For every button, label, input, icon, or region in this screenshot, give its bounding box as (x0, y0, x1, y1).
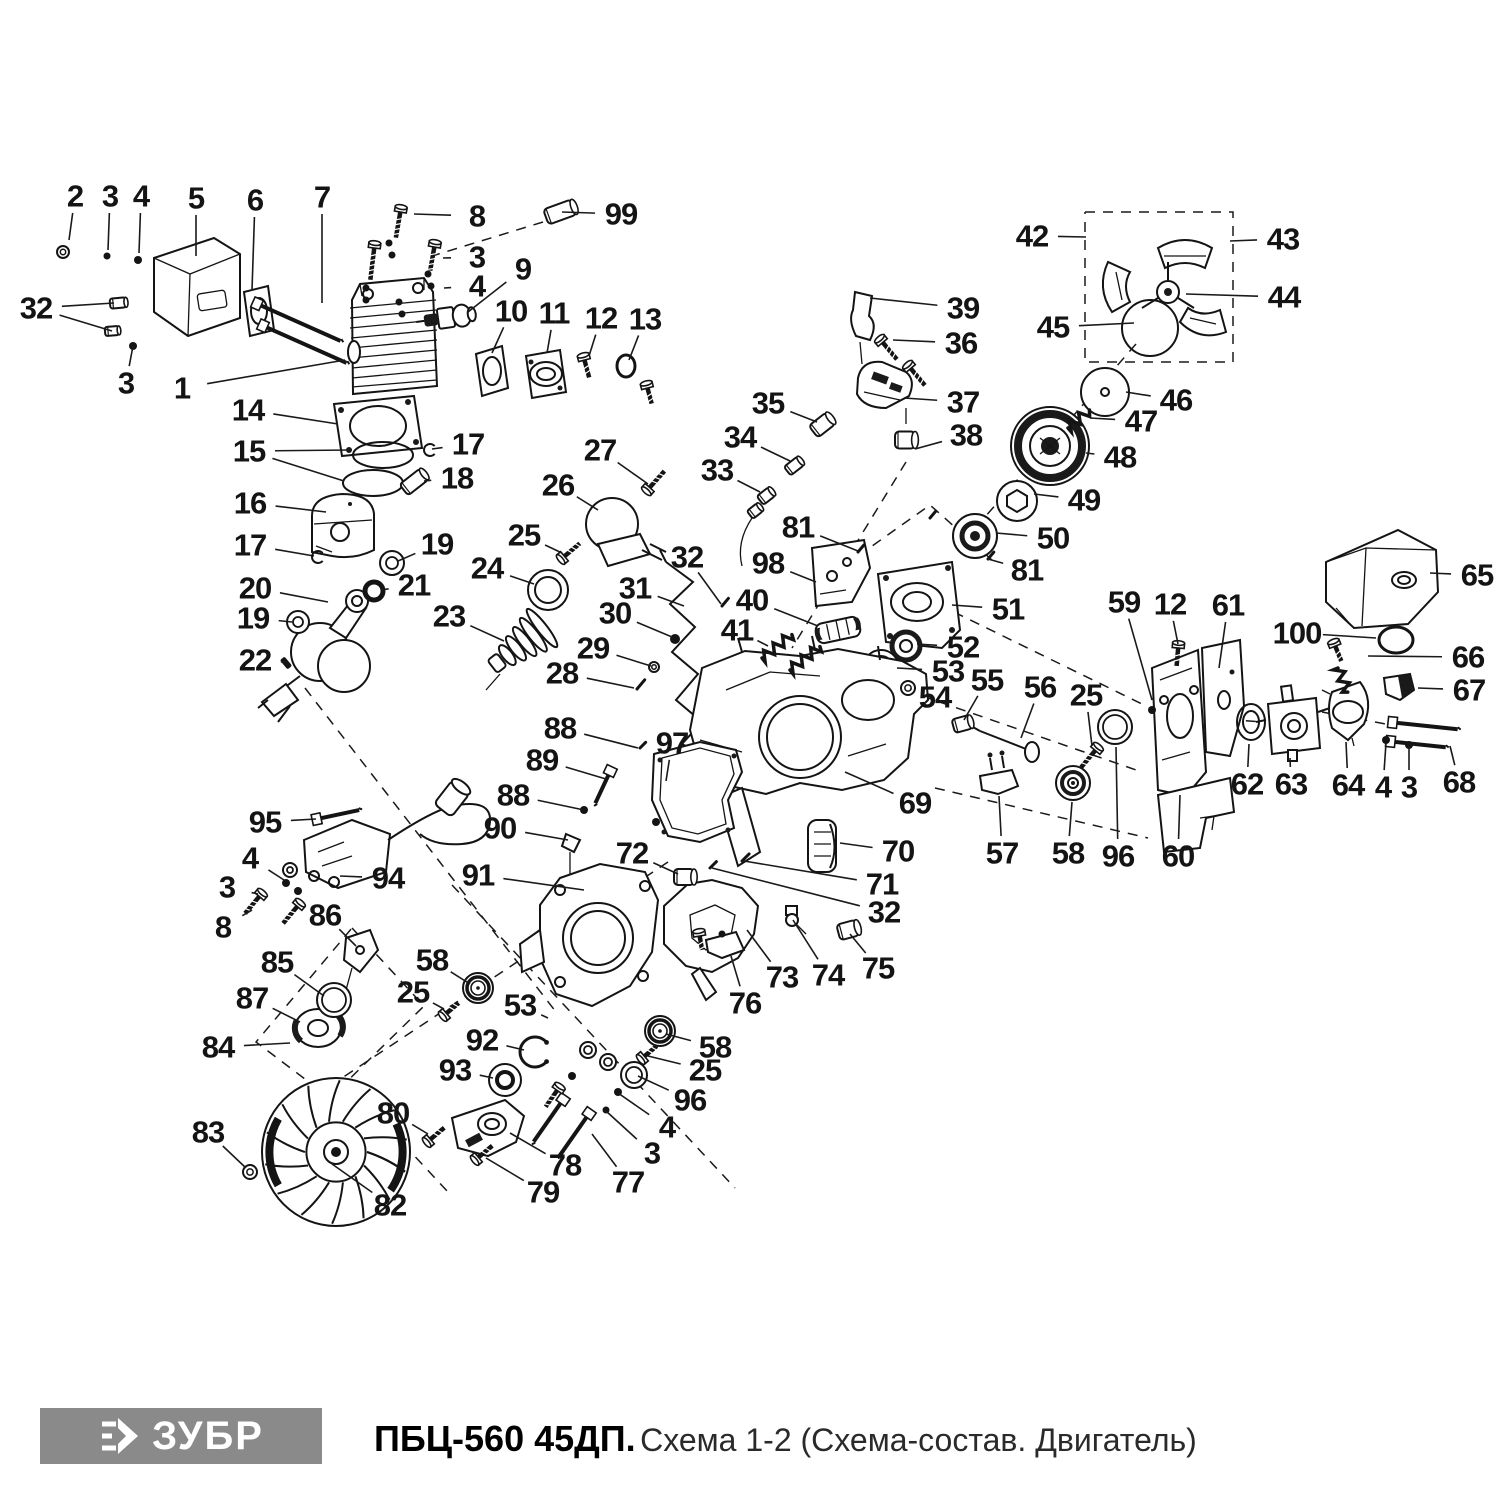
leader-line (870, 298, 937, 305)
parts-diagram-page: 2345678993941011121332311415171816171921… (0, 0, 1500, 1500)
hardware-washer-glyph (317, 983, 351, 1017)
leader-line (1086, 453, 1094, 454)
leader-line (592, 1134, 617, 1167)
leader-line (648, 1056, 681, 1064)
leader-line (1079, 323, 1134, 326)
hardware-screw-glyph (390, 204, 408, 239)
leader-line (618, 462, 648, 484)
leader-line (1069, 802, 1072, 836)
hardware-dot-glyph (294, 887, 302, 895)
part-number-54: 54 (919, 680, 953, 715)
part-number-22: 22 (239, 643, 271, 678)
part-crankshaft (258, 590, 370, 722)
leader-line (1368, 656, 1442, 657)
part-number-5: 5 (188, 181, 205, 216)
hardware-washer-glyph (621, 1062, 647, 1088)
leader-line (547, 330, 551, 353)
leader-line (587, 678, 634, 688)
part-number-28: 28 (546, 656, 579, 691)
part-number-95: 95 (249, 805, 282, 840)
part-number-33: 33 (701, 453, 734, 488)
hardware-dot-glyph (670, 634, 680, 644)
part-head-gasket (334, 396, 422, 456)
part-number-86: 86 (309, 898, 342, 933)
part-number-44: 44 (1268, 280, 1302, 315)
hardware-dot-glyph (425, 271, 432, 278)
hardware-dot-glyph (428, 283, 435, 290)
schema-subtitle: Схема 1-2 (Схема-состав. Двигатель) (640, 1422, 1197, 1458)
part-number-65: 65 (1461, 558, 1494, 593)
part-number-14: 14 (232, 393, 266, 428)
part-exhaust-gasket (476, 346, 508, 396)
hardware-pin-glyph (710, 862, 716, 868)
part-number-11: 11 (539, 296, 571, 331)
schema-title: ПБЦ-560 45ДП. Схема 1-2 (Схема-состав. Д… (374, 1418, 1197, 1460)
part-number-51: 51 (992, 592, 1025, 627)
hardware-screw-glyph (873, 333, 901, 363)
part-number-3: 3 (1401, 770, 1418, 805)
hardware-screw-glyph (364, 240, 381, 280)
leader-line (1058, 236, 1086, 237)
hardware-cyl-glyph (757, 486, 777, 505)
part-fuel-hose (740, 518, 752, 566)
model-name: ПБЦ-560 45ДП. (374, 1418, 636, 1459)
leader-line (747, 930, 771, 962)
part-number-27: 27 (584, 433, 616, 468)
leader-line (294, 975, 324, 996)
leader-line (62, 303, 114, 306)
leader-line (988, 559, 1003, 563)
part-number-37: 37 (947, 385, 979, 420)
brand-name: ЗУБР (152, 1416, 264, 1456)
hardware-screw-glyph (424, 239, 441, 272)
part-number-64: 64 (1332, 768, 1366, 803)
part-number-19: 19 (237, 601, 270, 636)
part-cylinder (348, 278, 437, 394)
leader-line (1346, 742, 1347, 768)
leader-line (893, 340, 935, 342)
hardware-pin-glyph (930, 511, 936, 518)
leader-line (744, 861, 857, 880)
hardware-screw-glyph (421, 1123, 448, 1148)
part-number-74: 74 (812, 958, 846, 993)
diagram-canvas: 2345678993941011121332311415171816171921… (0, 0, 1500, 1396)
part-number-35: 35 (752, 386, 785, 421)
part-number-19: 19 (421, 527, 454, 562)
part-number-49: 49 (1068, 483, 1101, 518)
hardware-oringD-glyph (365, 582, 383, 600)
part-number-1: 1 (174, 371, 191, 406)
hardware-screw-glyph (1327, 637, 1347, 663)
leader-line (637, 622, 672, 637)
part-number-81: 81 (1011, 553, 1044, 588)
hardware-cyl-glyph (895, 432, 918, 449)
part-number-39: 39 (947, 291, 980, 326)
leader-line (999, 796, 1001, 836)
part-number-59: 59 (1108, 585, 1141, 620)
part-seal-52 (892, 632, 920, 660)
leader-line (790, 572, 816, 582)
hardware-nut-glyph (649, 662, 659, 672)
part-number-8: 8 (469, 199, 486, 234)
hardware-dot-glyph (568, 1072, 576, 1080)
hardware-clipC-glyph (520, 1037, 549, 1067)
leader-line (1418, 688, 1443, 689)
part-number-97: 97 (656, 726, 688, 761)
hardware-dot-glyph (104, 253, 111, 260)
hardware-pin-glyph (640, 742, 646, 748)
leader-line (272, 458, 344, 481)
leader-line (698, 572, 721, 604)
part-number-58: 58 (699, 1030, 732, 1065)
part-number-3: 3 (118, 366, 135, 401)
hardware-screw-glyph (241, 887, 269, 917)
part-number-25: 25 (508, 518, 541, 553)
hardware-dot-glyph (1148, 706, 1156, 714)
part-number-76: 76 (729, 986, 762, 1021)
leader-line (1230, 240, 1257, 241)
hardware-nut-glyph (57, 246, 69, 258)
part-number-38: 38 (950, 418, 983, 453)
leader-line (562, 212, 595, 213)
hardware-dot-glyph (386, 240, 393, 247)
leader-line (584, 734, 638, 748)
part-number-55: 55 (971, 663, 1004, 698)
part-muffler (154, 238, 240, 336)
part-number-6: 6 (247, 183, 264, 218)
leader-line (790, 412, 817, 422)
hardware-dot-glyph (363, 285, 370, 292)
part-number-25: 25 (397, 975, 430, 1010)
part-number-58: 58 (416, 943, 449, 978)
part-number-32: 32 (671, 540, 703, 575)
part-number-4: 4 (1375, 770, 1393, 805)
leader-line (1090, 418, 1115, 419)
part-number-82: 82 (374, 1188, 406, 1223)
part-av-buffer-70 (808, 820, 836, 872)
part-number-21: 21 (398, 568, 431, 603)
hardware-pin-glyph (637, 680, 645, 689)
part-number-90: 90 (484, 811, 516, 846)
part-piston (312, 494, 374, 557)
part-number-91: 91 (462, 858, 495, 893)
part-switch-74 (786, 906, 806, 934)
part-number-70: 70 (882, 834, 914, 869)
hardware-oring-glyph (1379, 627, 1413, 653)
hardware-bolt-glyph (1385, 735, 1449, 753)
leader-line (737, 480, 760, 492)
part-clutch-drum (1011, 407, 1089, 485)
hardware-screw-glyph (577, 351, 595, 379)
part-oil-plunger-56 (971, 726, 1039, 762)
part-number-99: 99 (605, 197, 638, 232)
leader-line (915, 442, 942, 449)
leader-line (538, 800, 584, 810)
leader-line (207, 360, 345, 384)
part-number-43: 43 (1267, 222, 1300, 257)
part-number-53: 53 (504, 988, 537, 1023)
hardware-cyl-glyph (951, 714, 975, 733)
leader-line (273, 414, 338, 424)
hardware-screw-glyph (640, 379, 658, 405)
hardware-screw-glyph (437, 998, 463, 1022)
leader-line (1384, 743, 1386, 770)
leader-line (275, 450, 352, 451)
leader-line (731, 956, 740, 986)
hardware-washer-glyph (1098, 710, 1132, 744)
part-number-88: 88 (544, 711, 577, 746)
hardware-washer-glyph (283, 863, 297, 877)
part-number-56: 56 (1024, 670, 1057, 705)
construction-line (935, 788, 1148, 838)
part-chain-catcher-57 (980, 751, 1018, 795)
leader-line (470, 626, 504, 641)
part-number-89: 89 (526, 743, 559, 778)
leader-line (541, 1015, 548, 1018)
part-oil-pump-top (857, 362, 912, 424)
leader-line (1430, 573, 1451, 574)
hardware-dot-glyph (652, 818, 660, 826)
leader-line (275, 549, 314, 556)
part-number-94: 94 (372, 861, 406, 896)
part-oil-seal-24 (528, 570, 568, 610)
hardware-screw-glyph (1077, 741, 1105, 771)
hardware-cyl-glyph (809, 410, 838, 437)
part-crank-boot-tip (486, 674, 500, 690)
part-number-46: 46 (1160, 383, 1193, 418)
hardware-key-glyph (280, 656, 292, 669)
part-number-75: 75 (862, 951, 895, 986)
hardware-bolt-glyph (1387, 716, 1461, 735)
part-number-96: 96 (674, 1083, 707, 1118)
leader-line (589, 335, 596, 356)
part-number-67: 67 (1453, 673, 1485, 708)
part-number-84: 84 (202, 1030, 236, 1065)
part-insert-40 (813, 615, 863, 644)
part-number-48: 48 (1104, 440, 1137, 475)
part-number-88: 88 (497, 778, 530, 813)
hardware-cyl-glyph (105, 326, 122, 336)
part-number-62: 62 (1231, 767, 1263, 802)
leader-line (412, 1124, 428, 1134)
hardware-dot-glyph (1382, 736, 1390, 744)
part-number-31: 31 (619, 571, 652, 606)
part-number-81: 81 (782, 510, 815, 545)
leader-line (1186, 294, 1258, 296)
leader-line (1129, 619, 1152, 700)
part-number-3: 3 (219, 870, 236, 905)
part-number-72: 72 (616, 836, 648, 871)
leader-line (69, 213, 73, 240)
part-number-61: 61 (1212, 588, 1245, 623)
part-number-57: 57 (986, 836, 1018, 871)
leader-line (1323, 635, 1376, 638)
part-number-4: 4 (242, 841, 260, 876)
part-number-79: 79 (527, 1175, 560, 1210)
part-number-63: 63 (1275, 767, 1308, 802)
hardware-screw-glyph (279, 897, 307, 927)
leader-line (910, 689, 912, 690)
part-tank-vent (851, 292, 874, 364)
leader-line (340, 876, 362, 877)
part-number-68: 68 (1443, 765, 1476, 800)
part-number-8: 8 (215, 910, 232, 945)
leader-line (1116, 747, 1118, 839)
part-number-32: 32 (20, 291, 52, 326)
part-crankcase-left (520, 864, 658, 1006)
part-number-98: 98 (752, 546, 785, 581)
part-number-96: 96 (1102, 839, 1135, 874)
part-number-12: 12 (1154, 587, 1186, 622)
leader-line (606, 1111, 637, 1139)
part-number-32: 32 (868, 895, 900, 930)
part-number-2: 2 (67, 179, 83, 214)
part-number-80: 80 (377, 1096, 409, 1131)
hardware-dot-glyph (389, 252, 396, 259)
hardware-washer-glyph (580, 1042, 596, 1058)
part-needle-bearing-49 (997, 481, 1037, 521)
part-number-17: 17 (234, 528, 266, 563)
part-engine-pan-59 (1152, 650, 1206, 796)
part-number-15: 15 (233, 434, 266, 469)
leader-line (1088, 712, 1092, 746)
part-number-58: 58 (1052, 836, 1085, 871)
part-intake-flange (526, 350, 566, 398)
hardware-cyl-glyph (674, 869, 697, 885)
hardware-dot-glyph (399, 311, 406, 318)
leader-line (566, 767, 606, 779)
part-number-87: 87 (236, 981, 268, 1016)
footer-bar: ЗУБР ПБЦ-560 45ДП. Схема 1-2 (Схема-сост… (0, 1396, 1500, 1482)
leader-line (757, 641, 768, 646)
leader-line (904, 398, 937, 400)
part-number-29: 29 (577, 631, 610, 666)
part-clutch-spider (1142, 262, 1194, 308)
part-carburetor (1256, 685, 1330, 761)
hardware-dot-glyph (396, 299, 403, 306)
leader-line (252, 217, 254, 290)
part-number-3: 3 (102, 179, 119, 214)
leader-line (433, 1003, 444, 1009)
hardware-drum-glyph (463, 973, 493, 1003)
leader-line (629, 335, 639, 360)
leader-line (761, 447, 790, 461)
part-number-93: 93 (439, 1053, 472, 1088)
part-number-47: 47 (1125, 404, 1157, 439)
leader-line (280, 593, 328, 602)
leader-line (545, 545, 562, 553)
part-number-50: 50 (1037, 521, 1069, 556)
part-number-16: 16 (234, 486, 267, 521)
hardware-cyl-glyph (784, 455, 806, 475)
part-number-25: 25 (1070, 678, 1103, 713)
part-number-60: 60 (1162, 839, 1194, 874)
hardware-oring-glyph (617, 355, 635, 377)
leader-line (840, 843, 873, 847)
part-clutch-ring (1122, 300, 1178, 356)
part-number-42: 42 (1016, 219, 1048, 254)
part-number-9: 9 (515, 252, 532, 287)
leader-line (268, 870, 284, 880)
part-number-12: 12 (585, 301, 617, 336)
part-number-4: 4 (133, 179, 151, 214)
leader-line (618, 1093, 649, 1115)
hardware-dot-glyph (363, 297, 370, 304)
leader-line (223, 1146, 246, 1168)
leader-line (273, 1008, 300, 1022)
part-number-26: 26 (542, 468, 575, 503)
hardware-bolt-glyph (589, 765, 617, 809)
leader-line (1248, 744, 1249, 767)
leader-line (139, 213, 140, 253)
leader-line (432, 448, 443, 449)
leader-line (424, 480, 431, 481)
part-number-4: 4 (469, 269, 487, 304)
part-number-41: 41 (721, 613, 754, 648)
part-washer-drum-58 (1056, 766, 1090, 800)
part-number-34: 34 (724, 420, 758, 455)
part-number-66: 66 (1452, 640, 1485, 675)
part-number-18: 18 (441, 461, 474, 496)
hardware-dot-glyph (134, 256, 142, 264)
leader-line (60, 315, 112, 331)
part-number-100: 100 (1273, 616, 1322, 651)
part-number-7: 7 (314, 180, 330, 215)
part-primer (586, 498, 666, 566)
part-number-83: 83 (192, 1115, 225, 1150)
leader-line (244, 1043, 290, 1046)
leader-line (525, 832, 568, 840)
leader-line (486, 1158, 524, 1181)
leader-line (793, 920, 818, 959)
part-number-13: 13 (629, 302, 662, 337)
part-number-23: 23 (433, 599, 466, 634)
hardware-cyl-glyph (543, 198, 580, 224)
hardware-clip-glyph (424, 444, 435, 456)
hardware-washer-glyph (600, 1054, 616, 1070)
zubr-arrow-icon (98, 1414, 142, 1458)
hardware-dot-glyph (719, 931, 726, 938)
brand-logo: ЗУБР (40, 1408, 322, 1464)
part-number-77: 77 (612, 1165, 644, 1200)
part-number-24: 24 (471, 551, 505, 586)
leader-line (1034, 494, 1058, 497)
hardware-sealR-glyph (489, 1064, 521, 1096)
part-number-73: 73 (766, 960, 799, 995)
hardware-pin-glyph (722, 598, 728, 606)
hardware-drum-glyph (645, 1016, 675, 1046)
leader-line (1450, 746, 1455, 765)
part-gasket-61 (1202, 640, 1244, 756)
part-sprocket-50 (953, 514, 997, 558)
leader-line (414, 214, 451, 215)
part-choke-lever-67 (1384, 674, 1414, 700)
leader-line (996, 533, 1027, 536)
part-airbox-cover (1326, 530, 1438, 628)
part-number-10: 10 (495, 294, 527, 329)
part-number-36: 36 (945, 326, 978, 361)
part-number-69: 69 (899, 786, 932, 821)
hardware-nut-glyph (901, 681, 915, 695)
part-number-85: 85 (261, 945, 294, 980)
hardware-cyl-glyph (836, 919, 863, 940)
part-number-45: 45 (1037, 310, 1070, 345)
leader-line (108, 213, 109, 250)
leader-line (616, 655, 651, 666)
part-number-17: 17 (452, 427, 484, 462)
